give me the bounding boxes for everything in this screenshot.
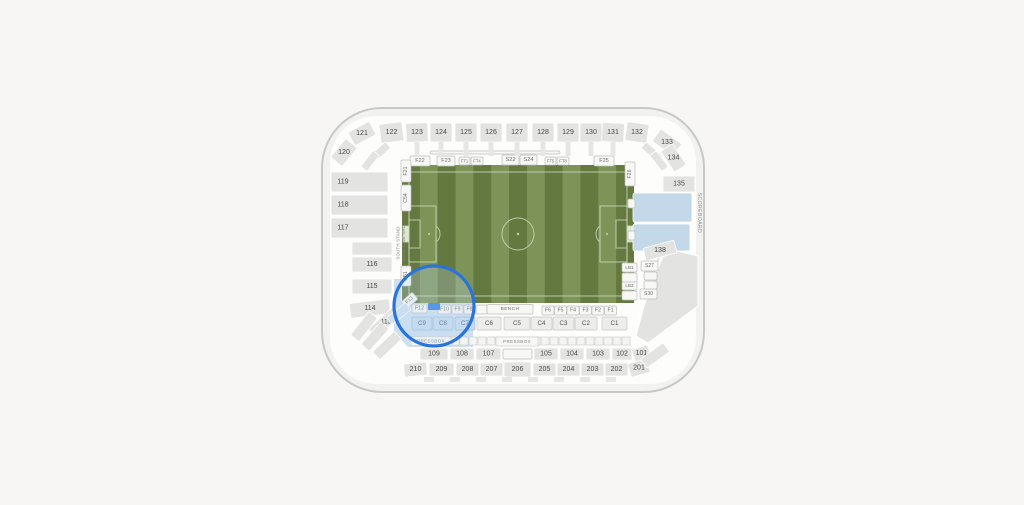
section-label: 105 <box>540 351 552 358</box>
walkway-stem <box>450 377 460 382</box>
south-stand-label-line1: SOUTH STAND <box>396 226 401 259</box>
section-label: F5 <box>557 308 563 314</box>
section-block[interactable] <box>644 272 657 280</box>
section-label: 134 <box>668 155 680 162</box>
section-F4[interactable]: F4 <box>567 306 579 315</box>
field-stripe <box>491 165 509 303</box>
section-S22[interactable]: S22 <box>502 155 519 165</box>
section-label: 102 <box>616 351 628 358</box>
section-102[interactable]: 102 <box>612 348 632 360</box>
section-C3[interactable]: C3 <box>553 317 574 330</box>
section-label: F23 <box>441 158 450 164</box>
section-label: 203 <box>587 366 599 373</box>
section-block[interactable] <box>644 281 657 289</box>
section-C5[interactable]: C5 <box>504 317 530 330</box>
section-label: 121 <box>356 130 368 137</box>
stadium-seating-map: 1221231241251261271281291301311321211201… <box>0 0 1024 500</box>
section-125[interactable]: 125 <box>455 123 477 142</box>
section-131[interactable]: 131 <box>602 122 625 142</box>
pressbox-seat-block <box>604 337 612 345</box>
pressbox-seat-block <box>595 337 603 345</box>
section-C6[interactable]: C6 <box>477 317 501 330</box>
section-119[interactable]: 119 <box>331 172 388 192</box>
section-label: S24 <box>523 157 534 163</box>
section-129[interactable]: 129 <box>557 123 579 142</box>
section-label: F21 <box>403 166 409 175</box>
section-label: 129 <box>562 129 574 136</box>
section-label: C6 <box>485 320 493 327</box>
section-label: S27 <box>645 263 654 269</box>
section-block[interactable] <box>628 231 635 240</box>
section-205[interactable]: 205 <box>533 363 556 376</box>
section-block[interactable] <box>503 349 532 359</box>
section-label: 109 <box>428 351 440 358</box>
section-C4[interactable]: C4 <box>531 317 552 330</box>
section-block[interactable] <box>476 305 487 314</box>
section-122[interactable]: 122 <box>379 122 404 144</box>
section-label: 128 <box>537 129 549 136</box>
section-103[interactable]: 103 <box>586 348 610 360</box>
walkway-stem <box>464 142 469 156</box>
section-F2[interactable]: F2 <box>592 306 604 315</box>
section-label: 108 <box>456 351 468 358</box>
section-label: 207 <box>486 366 498 373</box>
section-204[interactable]: 204 <box>557 363 580 376</box>
section-label: 138 <box>654 247 666 254</box>
section-label: 126 <box>485 129 497 136</box>
pressbox-seat-block <box>469 337 477 345</box>
section-109[interactable]: 109 <box>420 348 448 360</box>
walkway-stem <box>566 142 571 156</box>
section-F21[interactable]: F21 <box>401 160 411 182</box>
section-F23[interactable]: F23 <box>437 156 455 166</box>
pressbox-seat-block <box>613 337 621 345</box>
section-108[interactable]: 108 <box>450 348 474 360</box>
section-116[interactable]: 116 <box>352 257 392 272</box>
section-S27[interactable]: S27 <box>641 261 658 271</box>
section-label: F6 <box>545 308 551 314</box>
section-label: 135 <box>673 181 685 188</box>
section-107[interactable]: 107 <box>476 348 501 360</box>
section-F6[interactable]: F6 <box>542 306 554 315</box>
section-132[interactable]: 132 <box>625 122 649 144</box>
section-label: 208 <box>462 366 474 373</box>
pressbox-right[interactable]: PRESSBOX <box>496 337 538 346</box>
section-C54[interactable]: C54 <box>401 185 411 211</box>
walkway-stem <box>580 377 590 382</box>
section-label: 209 <box>436 366 448 373</box>
pressbox-seat-block <box>577 337 585 345</box>
section-115[interactable]: 115 <box>352 279 392 294</box>
walkway-stem <box>415 142 420 156</box>
section-C2[interactable]: C2 <box>575 317 597 330</box>
section-FT1[interactable]: FT1 <box>459 157 470 165</box>
section-128[interactable]: 128 <box>532 123 554 142</box>
section-label: C3 <box>560 320 568 327</box>
section-127[interactable]: 127 <box>506 123 528 142</box>
section-label: 118 <box>337 202 348 209</box>
section-label: 201 <box>633 365 645 372</box>
section-label: 124 <box>435 129 447 136</box>
section-203[interactable]: 203 <box>581 363 604 376</box>
section-label: F2 <box>595 308 601 314</box>
section-scoreboard-upper[interactable] <box>633 193 692 222</box>
section-label: LB1 <box>625 265 634 270</box>
section-block[interactable] <box>352 242 392 255</box>
walkway-stem <box>606 377 616 382</box>
section-label: 132 <box>631 129 643 136</box>
walkway-stem <box>611 142 616 156</box>
section-F22[interactable]: F22 <box>410 156 430 166</box>
section-F1[interactable]: F1 <box>605 306 617 315</box>
section-S24[interactable]: S24 <box>520 155 537 165</box>
section-LB1[interactable]: LB1 <box>622 263 637 272</box>
section-label: FT5 <box>547 159 555 164</box>
section-label: 107 <box>483 351 495 358</box>
section-label: 115 <box>366 283 377 290</box>
section-label: S22 <box>505 157 515 163</box>
section-F5[interactable]: F5 <box>555 306 567 315</box>
section-S30[interactable]: S30 <box>640 289 657 299</box>
section-label: FT4 <box>473 159 481 164</box>
section-FT5[interactable]: FT5 <box>545 157 556 165</box>
section-FT4[interactable]: FT4 <box>471 157 483 165</box>
section-label: 206 <box>512 366 524 373</box>
section-130[interactable]: 130 <box>580 123 602 142</box>
pressbox-seat-block <box>559 337 567 345</box>
section-label: 104 <box>566 351 578 358</box>
section-F26[interactable]: F26 <box>625 162 635 186</box>
section-label: 119 <box>337 179 348 186</box>
section-label: 131 <box>607 129 619 136</box>
section-123[interactable]: 123 <box>406 123 429 143</box>
walkway-stem <box>515 142 520 156</box>
section-label: FT1 <box>461 159 469 164</box>
section-label: 122 <box>386 129 398 136</box>
section-label: 130 <box>585 129 597 136</box>
section-202[interactable]: 202 <box>605 363 628 376</box>
section-208[interactable]: 208 <box>456 363 479 376</box>
pressbox-seat-block <box>478 337 486 345</box>
section-label: 123 <box>411 129 423 136</box>
walkway-stem <box>554 377 564 382</box>
section-label: C2 <box>582 320 590 327</box>
field-stripe <box>563 165 581 303</box>
section-label: C1 <box>611 320 619 327</box>
section-label: F25 <box>599 158 608 164</box>
section-label: S30 <box>644 291 653 297</box>
section-207[interactable]: 207 <box>480 363 503 376</box>
selection-highlight-circle <box>394 266 474 346</box>
section-label: FT8 <box>559 159 567 164</box>
section-label: C5 <box>513 320 521 327</box>
section-104[interactable]: 104 <box>560 348 584 360</box>
walkway-stem <box>528 377 538 382</box>
section-label: C54 <box>403 193 409 203</box>
section-label: 204 <box>563 366 575 373</box>
walkway-stem <box>424 377 434 382</box>
bench-label: BENCH <box>501 306 520 312</box>
section-label: F3 <box>582 308 588 314</box>
pressbox-right-label: PRESSBOX <box>503 339 531 344</box>
section-label: 202 <box>611 366 623 373</box>
walkway-stem <box>589 142 594 156</box>
section-label: 127 <box>511 129 523 136</box>
section-label: F22 <box>415 158 424 164</box>
walkway-stem <box>476 377 486 382</box>
section-block[interactable] <box>622 291 637 300</box>
section-block[interactable] <box>622 273 637 282</box>
section-label: 120 <box>338 149 350 156</box>
walkway-stem <box>502 377 512 382</box>
walkway-stem <box>439 142 444 156</box>
section-label: F1 <box>607 308 613 314</box>
pressbox-seat-block <box>541 337 549 345</box>
section-block[interactable] <box>628 199 635 208</box>
section-label: F26 <box>627 169 633 178</box>
pressbox-seat-block <box>487 337 495 345</box>
section-label: C4 <box>538 320 546 327</box>
section-label: 103 <box>592 351 604 358</box>
section-105[interactable]: 105 <box>534 348 558 360</box>
section-206[interactable]: 206 <box>504 362 531 377</box>
pressbox-seat-block <box>586 337 594 345</box>
section-F3[interactable]: F3 <box>580 306 592 315</box>
pressbox-seat-block <box>550 337 558 345</box>
section-210[interactable]: 210 <box>403 362 427 377</box>
walkway-stem <box>541 142 546 156</box>
section-C1[interactable]: C1 <box>602 317 627 330</box>
section-label: 125 <box>460 129 472 136</box>
section-FT8[interactable]: FT8 <box>557 157 569 165</box>
section-124[interactable]: 124 <box>430 123 452 142</box>
section-label: 205 <box>539 366 551 373</box>
walkway-stem <box>489 142 494 156</box>
south-stand-label-line2: GOAL-LINE SRO <box>401 224 406 261</box>
section-135[interactable]: 135 <box>663 176 695 192</box>
section-118[interactable]: 118 <box>331 195 388 215</box>
section-126[interactable]: 126 <box>480 123 502 142</box>
section-bench[interactable]: BENCH <box>487 305 533 315</box>
pressbox-seat-block <box>460 337 468 345</box>
scoreboard-label: SCOREBOARD <box>696 193 702 234</box>
section-label: 114 <box>364 305 375 312</box>
section-label: LB3 <box>625 283 634 288</box>
section-209[interactable]: 209 <box>429 363 454 376</box>
section-label: 210 <box>410 366 422 373</box>
pressbox-seat-block <box>622 337 630 345</box>
field-stripe <box>527 165 545 303</box>
section-label: 117 <box>337 225 348 232</box>
section-label: F4 <box>570 308 576 314</box>
section-117[interactable]: 117 <box>331 218 388 238</box>
section-F25[interactable]: F25 <box>594 156 614 166</box>
section-label: 116 <box>366 261 377 268</box>
pressbox-seat-block <box>568 337 576 345</box>
